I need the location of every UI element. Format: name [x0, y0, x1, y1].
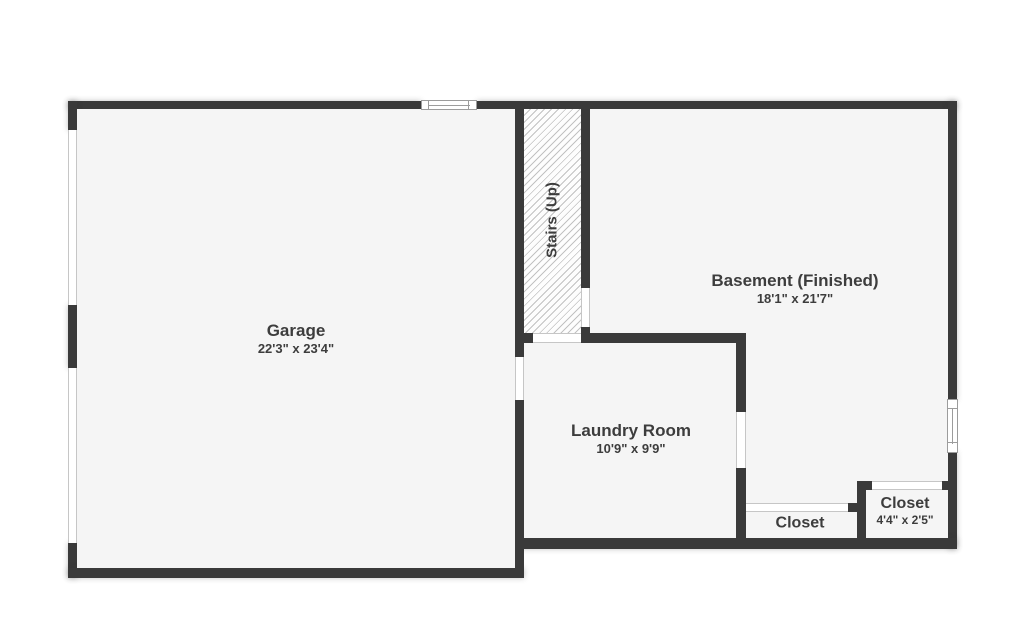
wall-stairs-bottom-stub [524, 333, 533, 343]
basement-name: Basement (Finished) [711, 271, 878, 291]
garage-window [421, 100, 477, 110]
garage-dims: 22'3" x 23'4" [258, 341, 334, 357]
closet-right-name: Closet [876, 494, 933, 513]
wall-closet-right-top-right-stub [942, 481, 948, 490]
closet-middle-label: Closet [776, 514, 825, 533]
closet-right-dims: 4'4" x 2'5" [876, 513, 933, 528]
garage-laundry-door-opening [515, 357, 524, 400]
wall-laundry-right-upper [736, 333, 746, 412]
floor-plan: Garage 22'3" x 23'4" Stairs (Up) Basemen… [0, 0, 1024, 622]
laundry-room-name: Laundry Room [571, 421, 691, 441]
stairs-bottom-opening [533, 333, 581, 343]
basement-window [947, 399, 958, 453]
laundry-room-label: Laundry Room 10'9" x 9'9" [571, 421, 691, 457]
wall-between-closets [857, 481, 866, 549]
garage-label: Garage 22'3" x 23'4" [258, 321, 334, 357]
wall-right-lower-segment [948, 452, 957, 549]
wall-laundry-right-lower [736, 468, 746, 549]
wall-closet-right-top-left-stub [857, 481, 872, 490]
basement-label: Basement (Finished) 18'1" x 21'7" [711, 271, 878, 307]
wall-closet-middle-stub [848, 503, 857, 512]
stairs-basement-door-opening [581, 288, 590, 327]
wall-left-top-segment [68, 101, 77, 130]
wall-garage-right-lower [515, 400, 524, 578]
closet-middle-name: Closet [776, 514, 825, 533]
wall-top-left-segment [68, 101, 421, 109]
wall-top-right-segment [477, 101, 957, 109]
stairs-label: Stairs (Up) [544, 182, 561, 258]
wall-stairs-right [581, 109, 590, 288]
wall-garage-bottom [68, 568, 524, 578]
wall-laundry-top [581, 333, 746, 343]
closet-right-opening [872, 481, 942, 490]
garage-door-opening-1 [68, 130, 77, 305]
closet-right-label: Closet 4'4" x 2'5" [876, 494, 933, 528]
basement-dims: 18'1" x 21'7" [711, 291, 878, 307]
closet-middle-opening [746, 503, 848, 512]
wall-left-middle-segment [68, 305, 77, 368]
garage-door-opening-2 [68, 368, 77, 543]
garage-name: Garage [258, 321, 334, 341]
stairs-name: Stairs (Up) [544, 182, 561, 258]
wall-garage-right-upper [515, 101, 524, 357]
wall-right-upper-segment [948, 101, 957, 400]
laundry-room-dims: 10'9" x 9'9" [571, 441, 691, 457]
laundry-basement-door-opening [736, 412, 746, 468]
